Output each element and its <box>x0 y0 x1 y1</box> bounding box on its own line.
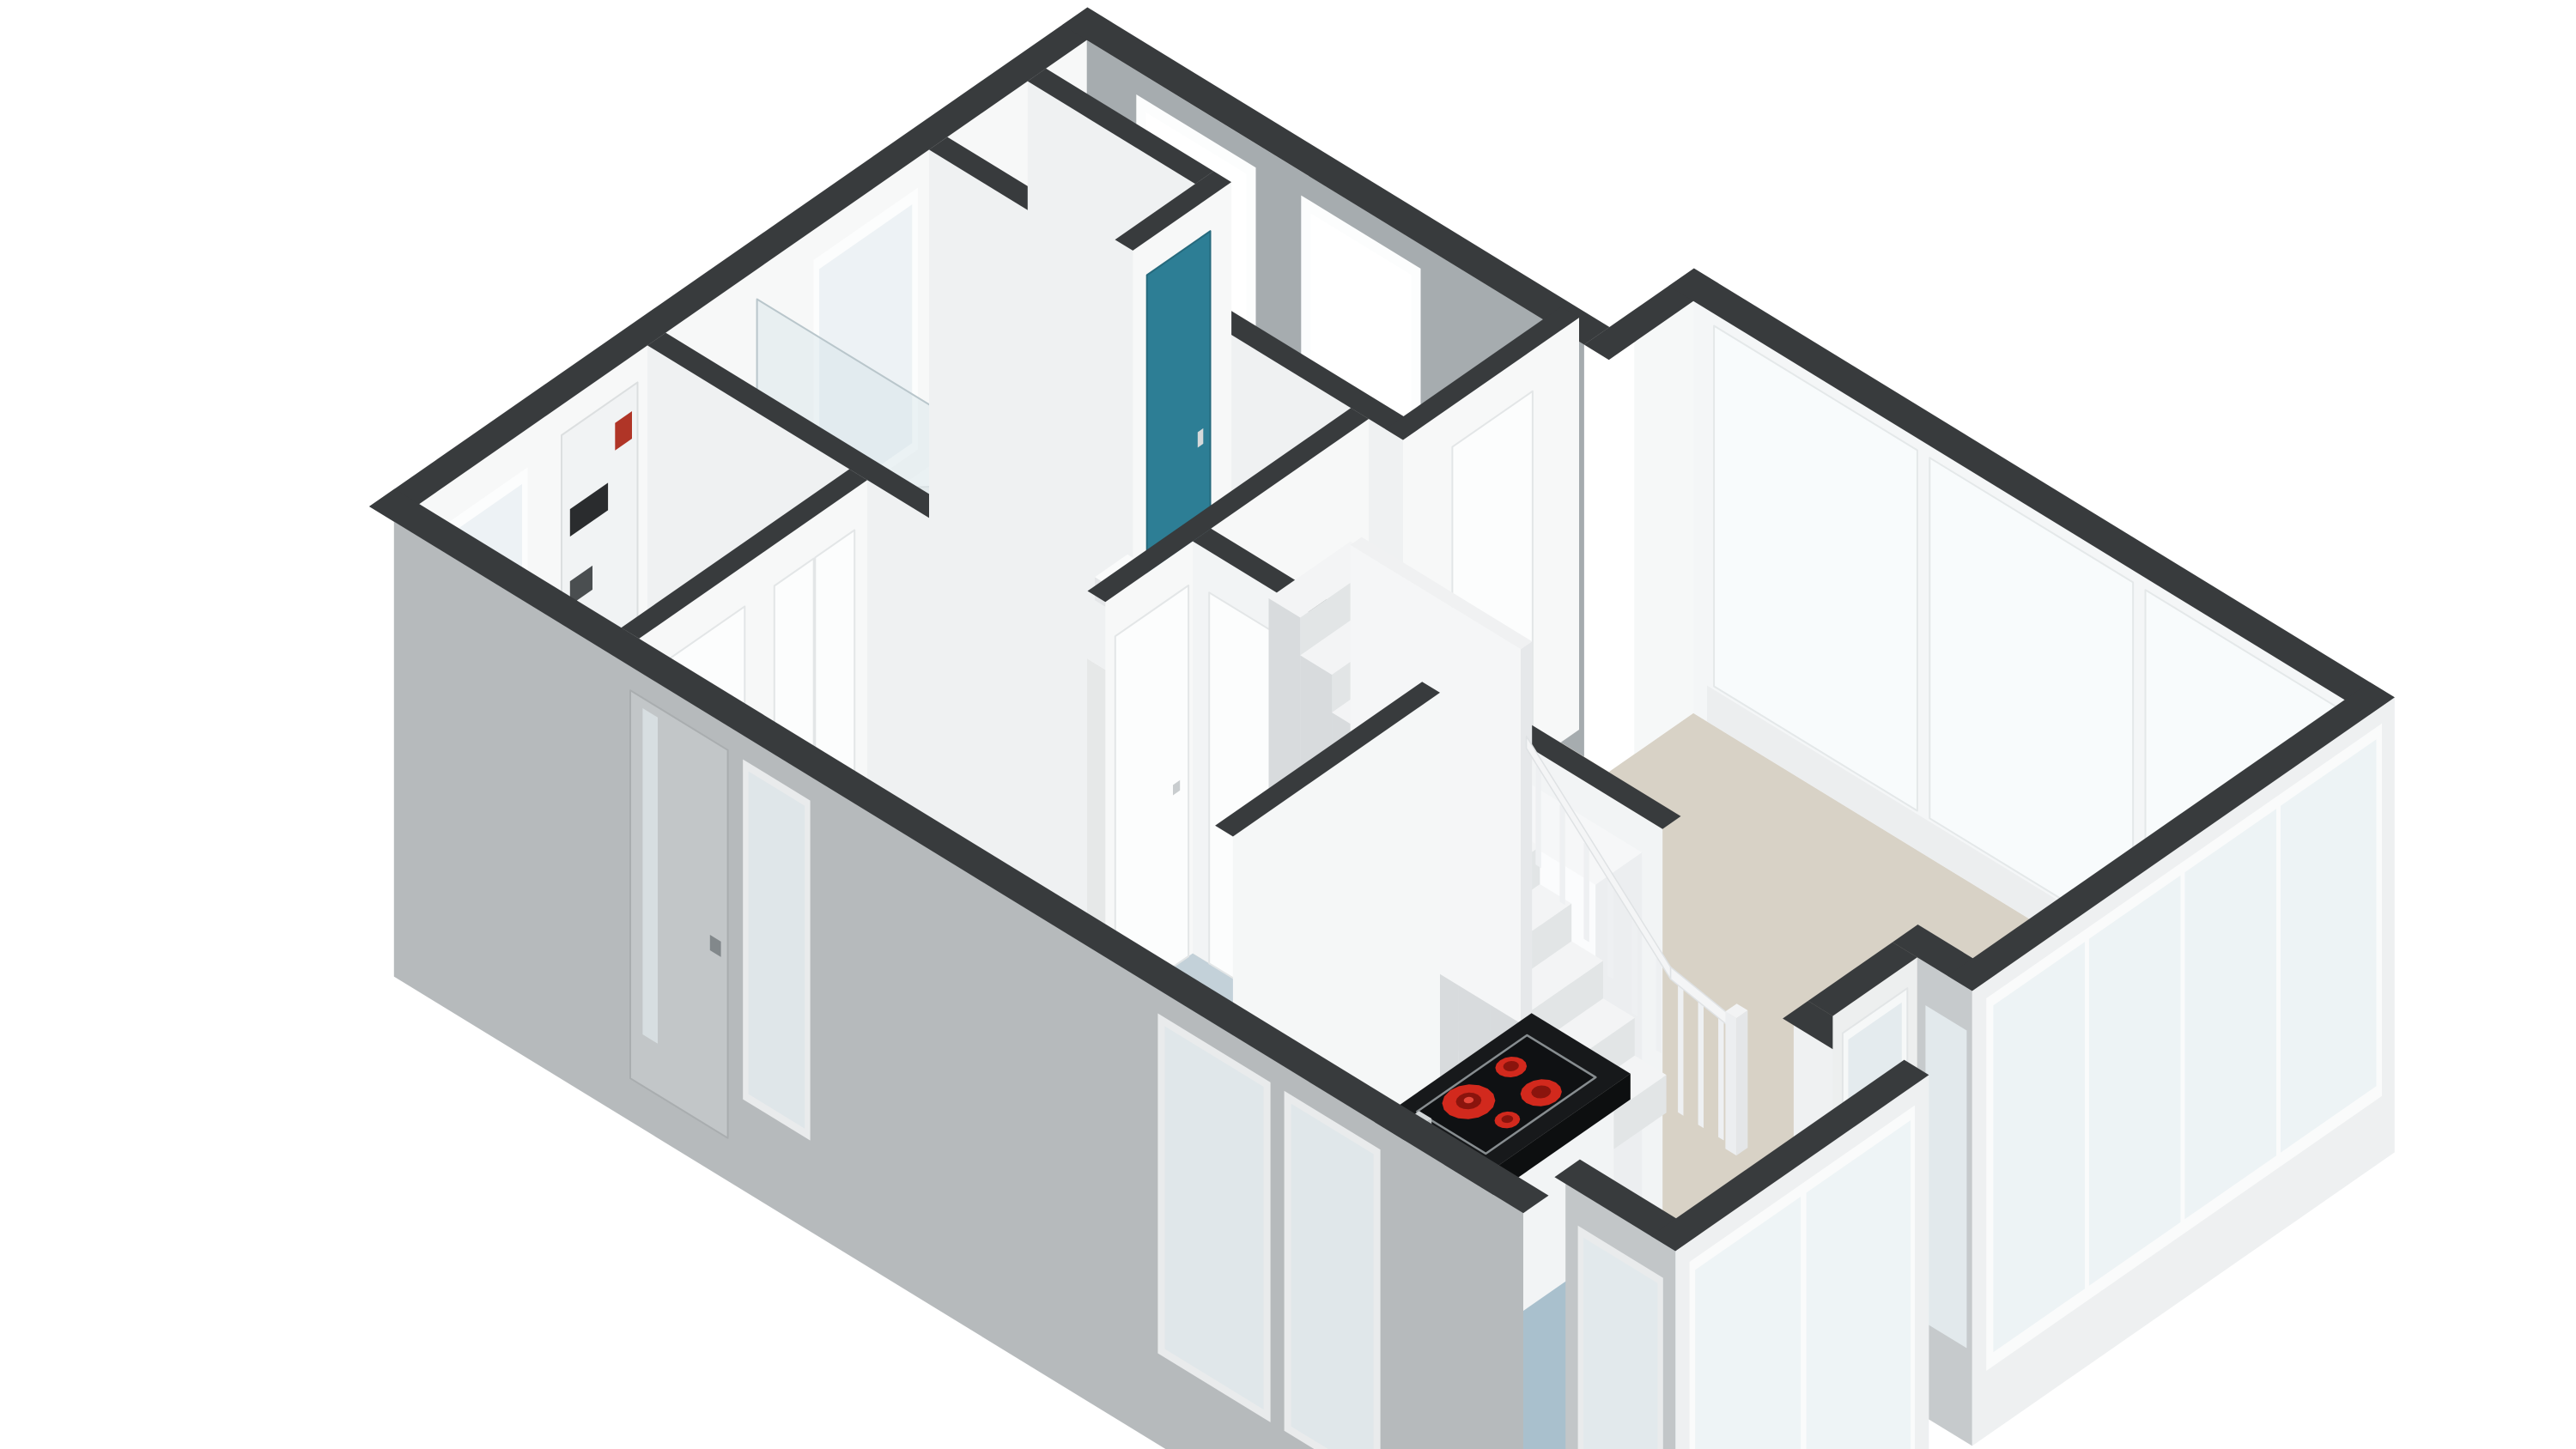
window-glass-living-side <box>1925 1005 1966 1348</box>
window-glass-kitchen-1 <box>1164 1026 1263 1410</box>
railing-spindle <box>1535 766 1540 868</box>
railing-spindle <box>1656 958 1661 1053</box>
floorplan-svg <box>0 0 2576 1449</box>
railing-spindle <box>1718 1018 1723 1140</box>
floorplan-stage <box>0 0 2576 1449</box>
living-front-glass-1 <box>1993 942 2085 1352</box>
stair-stringer-wall <box>1521 641 1532 1023</box>
window-glass-entry <box>749 772 805 1129</box>
stair-newel-post <box>1725 1011 1736 1155</box>
railing-spindle <box>1559 804 1564 905</box>
front-door-glass-slit <box>642 708 658 1044</box>
railing-spindle <box>1698 1002 1704 1128</box>
living-front-glass-3 <box>2184 809 2276 1219</box>
living-front-glass-4 <box>2281 739 2377 1152</box>
wall-face-step <box>1634 301 1693 755</box>
railing-spindle <box>1607 882 1613 979</box>
railing-spindle <box>1631 919 1637 1016</box>
window-glass-kitchen-2 <box>1291 1104 1374 1449</box>
living-front-glass-2 <box>2089 876 2181 1286</box>
railing-spindle <box>1583 843 1589 943</box>
railing-spindle <box>1678 985 1683 1116</box>
stair-newel-post <box>1736 1010 1747 1155</box>
